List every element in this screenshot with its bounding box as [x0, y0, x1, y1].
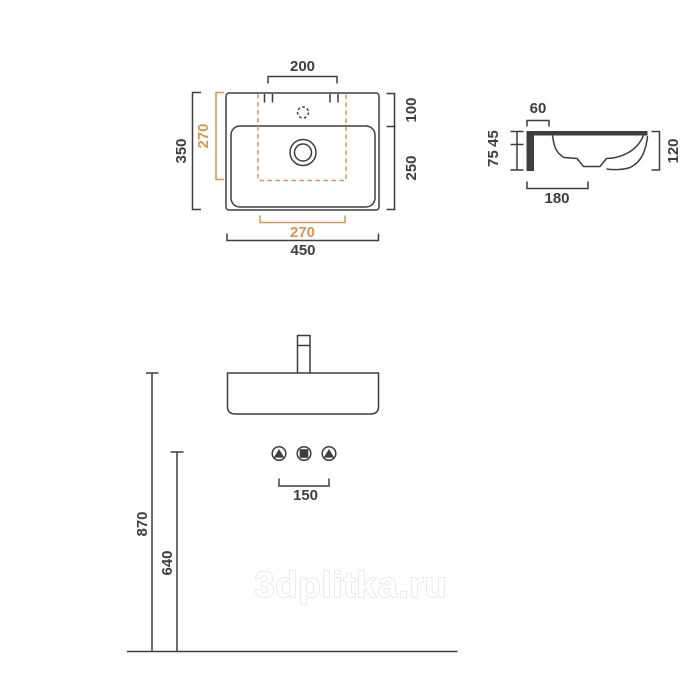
drain-inner-circle: [295, 144, 312, 161]
side-section-view: 60 45 75 120 180: [485, 100, 682, 207]
dim-label-180: 180: [544, 190, 569, 207]
faucet-outline: [298, 336, 311, 374]
dim-label-270-width: 270: [290, 224, 315, 241]
tap-position-ticks: [265, 94, 339, 103]
dim-line-120: [652, 131, 660, 171]
dim-label-450: 450: [290, 242, 315, 259]
section-rim: [527, 131, 648, 136]
section-back-wall: [527, 131, 535, 171]
section-basin-profile: [553, 136, 614, 167]
dim-label-45: 45: [485, 130, 502, 147]
dim-label-250: 250: [403, 155, 420, 180]
dim-label-200: 200: [290, 58, 315, 75]
dim-label-150: 150: [293, 487, 318, 504]
dim-bracket-60: [527, 121, 549, 127]
technical-drawing: 3dplitka.ru 200 350 270 100 250 270: [0, 0, 700, 700]
dim-bracket-150: [279, 479, 329, 487]
dim-bracket-200: [268, 77, 337, 84]
waste-symbol-square: [300, 449, 309, 458]
dim-bracket-270-width: [260, 216, 345, 223]
plan-view: 200 350 270 100 250 270 450: [173, 58, 420, 259]
dim-bracket-350: [193, 93, 202, 210]
dim-label-640: 640: [159, 550, 176, 575]
dim-label-870: 870: [134, 511, 151, 536]
dim-label-350: 350: [173, 138, 190, 163]
dim-bracket-180: [527, 182, 588, 189]
dim-label-60: 60: [530, 100, 547, 117]
dim-label-270-depth: 270: [195, 123, 212, 148]
washbasin-technical-drawing-page: 3dplitka.ru 200 350 270 100 250 270: [0, 0, 700, 700]
supply-symbol-left-triangle: [274, 449, 285, 458]
plan-cutout-dashed-zone: [258, 94, 346, 181]
dim-line-45-75: [511, 131, 524, 171]
tap-hole-dashed-circle: [298, 107, 309, 118]
watermark-text: 3dplitka.ru: [254, 564, 447, 605]
dim-label-75: 75: [485, 150, 502, 167]
dim-label-100: 100: [403, 97, 420, 122]
supply-symbol-right-triangle: [324, 449, 335, 458]
dim-label-120: 120: [665, 138, 682, 163]
section-front-wall: [613, 136, 644, 159]
plan-outer-rim: [226, 93, 379, 210]
basin-front-outline: [228, 373, 379, 414]
dim-bracket-270-depth: [216, 93, 224, 180]
dim-line-100-250: [387, 93, 396, 210]
plan-basin-edge: [231, 126, 375, 207]
